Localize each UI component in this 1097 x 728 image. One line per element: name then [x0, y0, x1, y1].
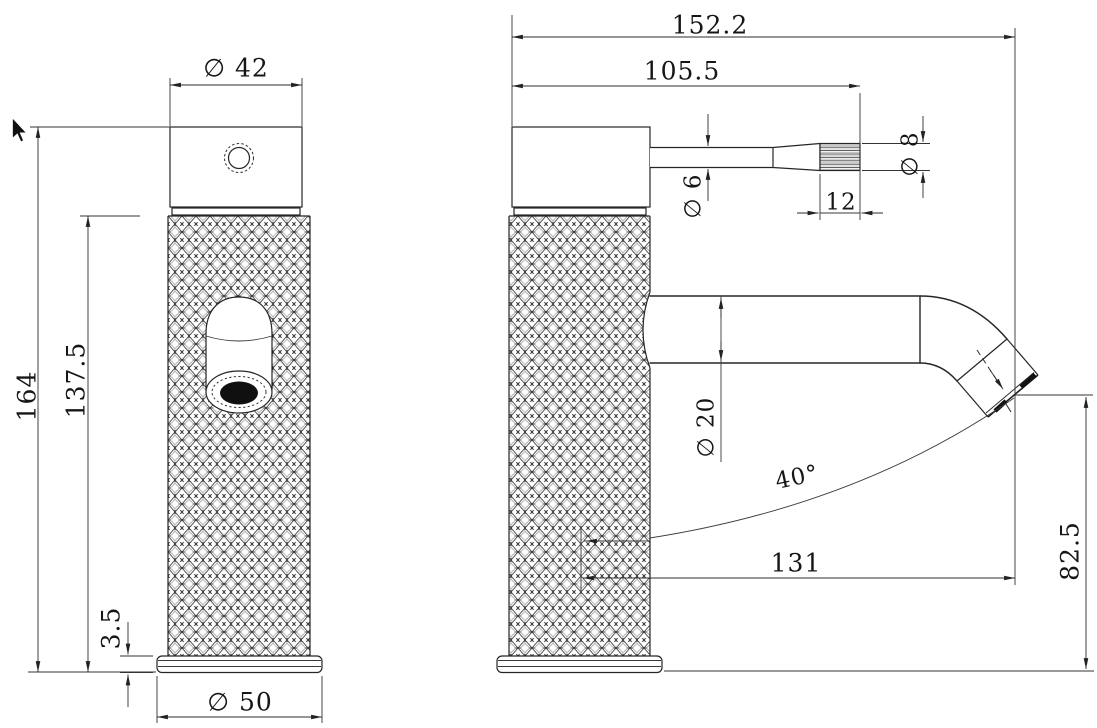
front-knurled-body	[168, 216, 310, 656]
dim-total-height: 164	[12, 127, 170, 672]
faucet-dimension-drawing: ∅ 42 164 137.5 3.5 ∅ 50	[0, 0, 1097, 728]
dim-text-cap-diameter: ∅ 42	[203, 53, 269, 82]
side-view: 152.2 105.5 ∅ 6 ∅ 8 12	[497, 10, 1094, 672]
dim-text-outlet-height: 82.5	[1055, 521, 1084, 581]
side-collar	[514, 208, 646, 215]
side-cap	[512, 127, 650, 207]
side-handle-lever	[650, 144, 860, 171]
handle-knurled-tip	[820, 144, 860, 171]
front-outlet-hole	[220, 382, 258, 405]
technical-drawing-page: ∅ 42 164 137.5 3.5 ∅ 50	[0, 0, 1097, 728]
dim-text-total-length: 152.2	[672, 10, 749, 39]
dim-text-stem-diameter: ∅ 6	[681, 174, 707, 219]
front-view: ∅ 42 164 137.5 3.5 ∅ 50	[12, 53, 322, 723]
dim-text-total-height: 164	[12, 371, 41, 422]
front-spout	[206, 297, 272, 413]
front-base-flange	[157, 656, 322, 673]
dim-cap-diameter: ∅ 42	[170, 53, 302, 126]
dim-text-upper-length: 105.5	[644, 56, 721, 85]
dim-text-spout-reach: 131	[771, 548, 822, 577]
dim-text-spout-diameter: ∅ 20	[694, 397, 720, 458]
dim-base-thickness: 3.5	[96, 607, 153, 707]
dim-body-height: 137.5	[61, 216, 140, 672]
dim-text-base-thickness: 3.5	[96, 607, 125, 650]
front-collar	[172, 208, 300, 215]
side-knurled-body	[509, 216, 650, 656]
dim-text-tip-diameter: ∅ 8	[898, 132, 924, 177]
cursor-pointer	[13, 118, 27, 142]
dim-text-spout-angle: 40°	[773, 460, 821, 495]
dim-text-body-height: 137.5	[61, 342, 90, 419]
dim-tip-diameter: ∅ 8	[862, 116, 930, 198]
dim-text-knurl-length: 12	[825, 190, 856, 216]
dim-base-diameter: ∅ 50	[157, 676, 322, 723]
dim-knurl-length: 12	[797, 174, 883, 220]
dim-text-base-diameter: ∅ 50	[207, 687, 273, 716]
front-push-button	[225, 144, 254, 173]
dim-outlet-height: 82.5	[664, 395, 1094, 671]
side-base-flange	[497, 656, 662, 673]
